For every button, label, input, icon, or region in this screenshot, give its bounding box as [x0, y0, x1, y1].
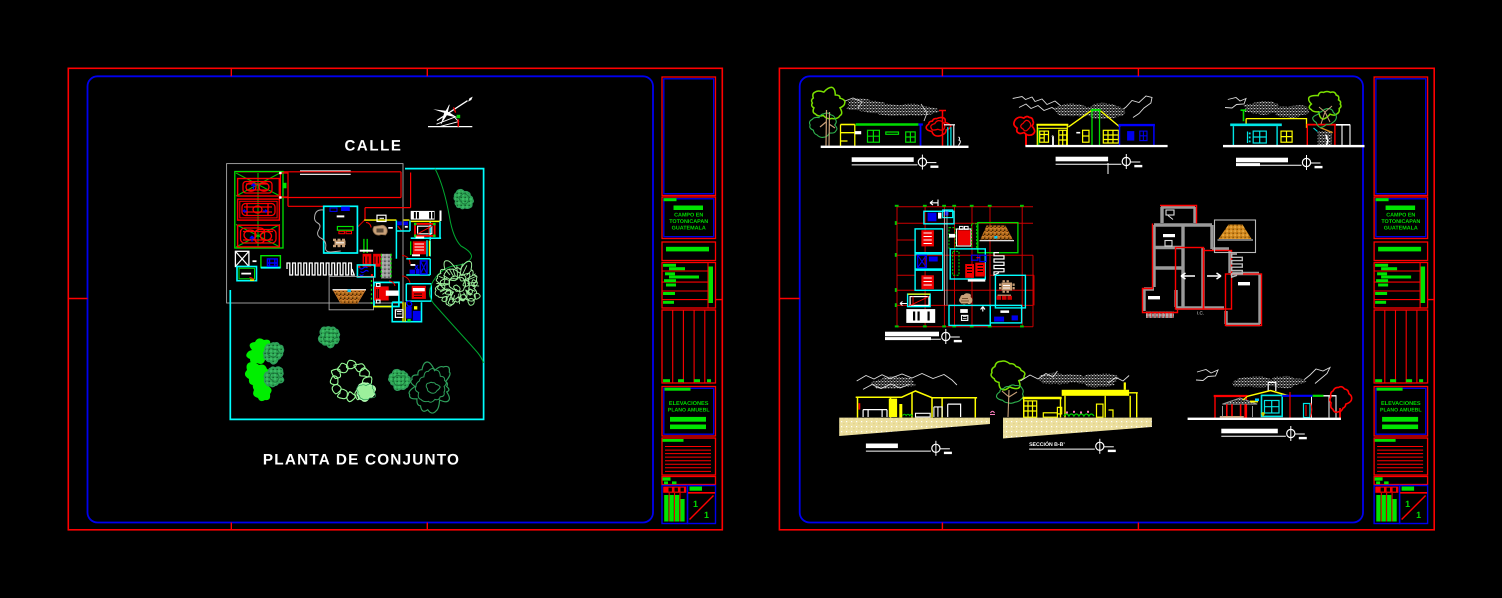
- svg-text:GUATEMALA: GUATEMALA: [1384, 226, 1418, 232]
- svg-text:ELEVACIONES: ELEVACIONES: [669, 401, 709, 407]
- svg-text:CALLE: CALLE: [345, 138, 403, 155]
- svg-text:CAMPO EN: CAMPO EN: [674, 213, 703, 219]
- svg-text:ELEVACIONES: ELEVACIONES: [1381, 401, 1421, 407]
- svg-text:PLANO AMUEBL: PLANO AMUEBL: [668, 408, 710, 414]
- svg-text:TOTONICAPAN: TOTONICAPAN: [669, 219, 708, 225]
- svg-text:1: 1: [1416, 510, 1421, 520]
- svg-text:SECCIÓN B-B’: SECCIÓN B-B’: [1029, 441, 1065, 448]
- svg-text:GUATEMALA: GUATEMALA: [672, 226, 706, 232]
- svg-text:I.C.: I.C.: [1197, 311, 1204, 316]
- svg-text:1: 1: [1405, 499, 1410, 509]
- svg-text:1: 1: [704, 510, 709, 520]
- svg-text:PLANTA DE CONJUNTO: PLANTA DE CONJUNTO: [263, 452, 460, 469]
- svg-text:TOTONICAPAN: TOTONICAPAN: [1381, 219, 1420, 225]
- svg-text:CAMPO EN: CAMPO EN: [1386, 213, 1415, 219]
- svg-text:1: 1: [693, 499, 698, 509]
- svg-text:PLANO AMUEBL: PLANO AMUEBL: [1380, 408, 1422, 414]
